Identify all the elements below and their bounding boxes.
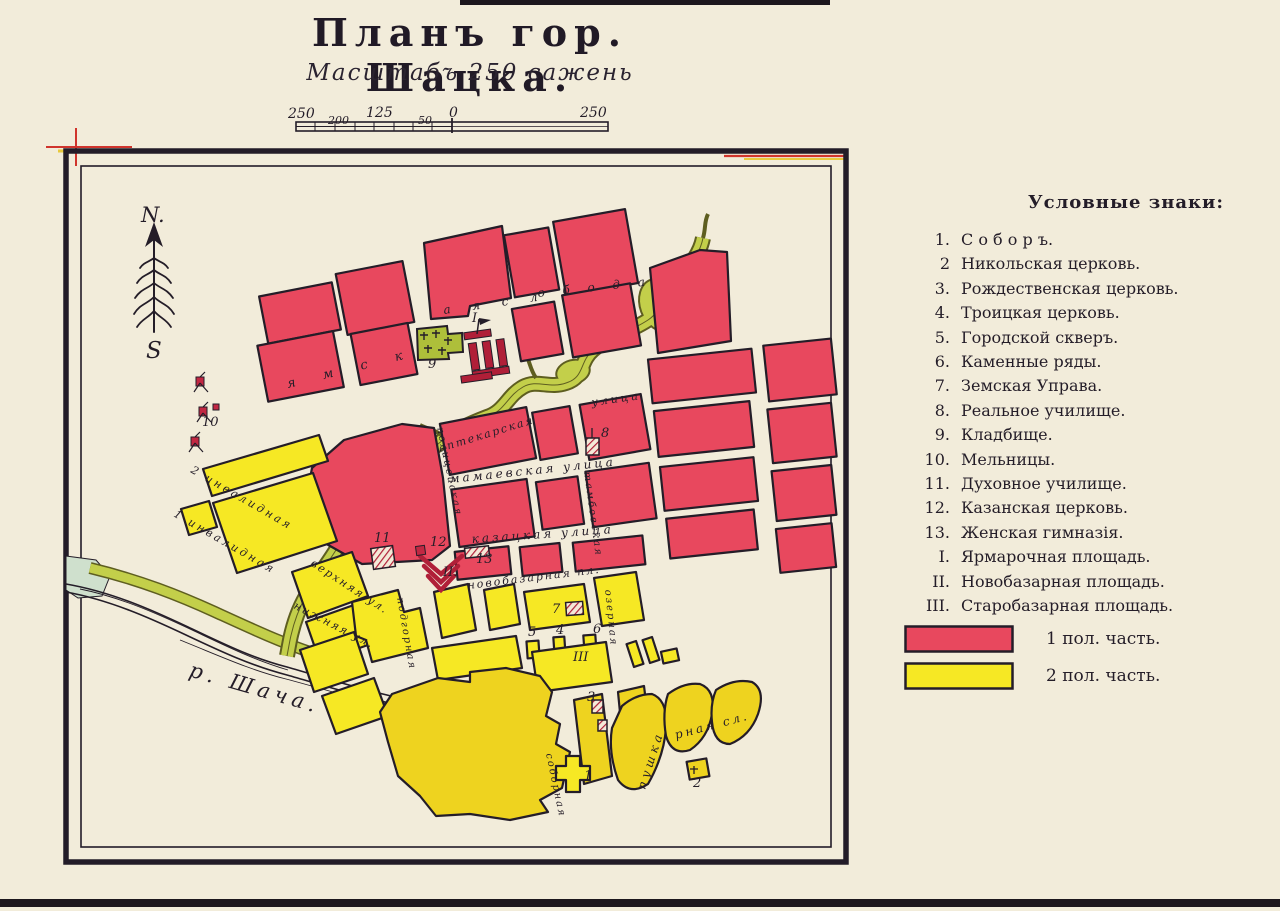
map-number: 9 [428, 357, 436, 372]
compass-south-label: S [146, 338, 162, 364]
swatch-row-part1: 1 пол. часть. [904, 625, 1160, 653]
legend-item: II.Новобазарная площадь. [894, 570, 1179, 594]
windmill-icon [194, 372, 208, 392]
legend-item: 8.Реальное училище. [894, 399, 1179, 423]
windmill-icon [189, 432, 203, 452]
cemetery-block [417, 326, 463, 360]
map-legend: Условные знаки: 1.С о б о р ъ. 2Никольск… [880, 0, 1280, 907]
legend-item: 11.Духовное училище. [894, 472, 1179, 496]
scale-tick-label: 50 [418, 114, 432, 127]
legend-swatches: 1 пол. часть. 2 пол. часть. [904, 625, 1160, 699]
legend-item: 10.Мельницы. [894, 448, 1179, 472]
scale-tick-label: 0 [449, 105, 458, 121]
first-part-blocks [257, 209, 836, 580]
map-number: 3 [587, 690, 595, 705]
map-number: 1 [584, 769, 592, 784]
legend-list: 1.С о б о р ъ. 2Никольская церковь. 3.Ро… [894, 228, 1179, 619]
scale-tick-label: 250 [579, 105, 607, 121]
map-number: 12 [430, 535, 447, 550]
legend-item: 1.С о б о р ъ. [894, 228, 1179, 252]
map-number: 4 [555, 623, 564, 638]
legend-item: 6.Каменные ряды. [894, 350, 1179, 374]
map-number: 7 [552, 602, 561, 617]
swatch-row-part2: 2 пол. часть. [904, 662, 1160, 690]
legend-item: 5.Городской скверъ. [894, 326, 1179, 350]
compass-rose: N. S [134, 203, 174, 364]
legend-item: 12.Казанская церковь. [894, 496, 1179, 520]
legend-item: 3.Рождественская церковь. [894, 277, 1179, 301]
scale-tick-label: 200 [327, 114, 349, 127]
map-number: II. [442, 565, 457, 580]
bottom-gold-blocks [380, 668, 761, 820]
part1-color-swatch [904, 625, 1014, 653]
river-label: р. Шача. [187, 658, 324, 718]
scale-tick-label: 250 [287, 106, 315, 122]
legend-item: I.Ярмарочная площадь. [894, 545, 1179, 569]
legend-item: 7.Земская Управа. [894, 374, 1179, 398]
map-number: 8 [601, 426, 609, 441]
legend-item: III.Старобазарная площадь. [894, 594, 1179, 618]
map-number: 5 [528, 625, 536, 640]
map-number: 10 [202, 415, 219, 430]
compass-north-label: N. [140, 203, 165, 227]
map-number: 6 [593, 622, 601, 637]
swatch-label: 2 пол. часть. [1046, 666, 1160, 686]
legend-header: Условные знаки: [1028, 192, 1224, 213]
map-number: III [572, 650, 589, 665]
part2-color-swatch [904, 662, 1014, 690]
stone-rows-buildings [461, 329, 510, 383]
legend-item: 2Никольская церковь. [894, 252, 1179, 276]
legend-item: 13.Женская гимназія. [894, 521, 1179, 545]
map-number: I. [471, 311, 481, 326]
scale-bar: 250 200 125 50 0 250 [287, 105, 608, 133]
legend-item: 9.Кладбище. [894, 423, 1179, 447]
scale-tick-label: 125 [366, 105, 393, 121]
swatch-label: 1 пол. часть. [1046, 629, 1160, 649]
legend-item: 4.Троицкая церковь. [894, 301, 1179, 325]
map-number: 11 [374, 531, 391, 546]
map-number: 13 [476, 552, 493, 567]
map-number: 2 [692, 776, 701, 791]
